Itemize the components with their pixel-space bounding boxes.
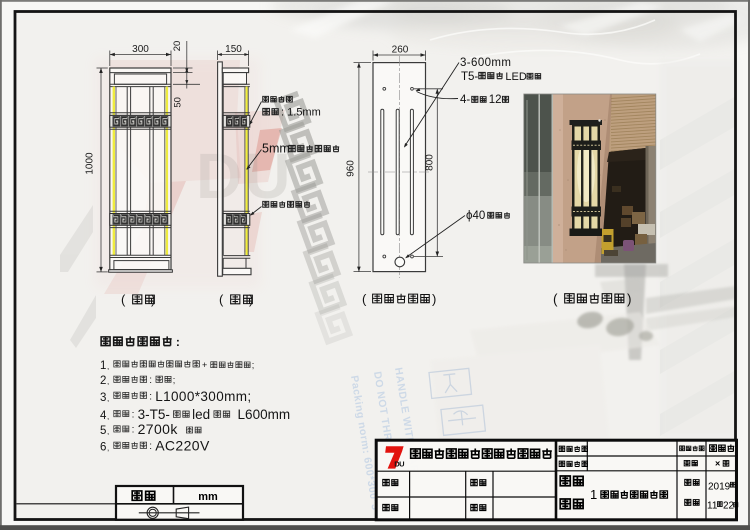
svg-text:(: ( <box>121 292 126 307</box>
svg-text:): ) <box>627 292 632 307</box>
svg-text:3-T5-: 3-T5- <box>138 407 170 422</box>
svg-text:1000: 1000 <box>85 152 96 175</box>
svg-text:12: 12 <box>489 94 502 106</box>
svg-text:ϕ40: ϕ40 <box>466 210 485 222</box>
svg-text:,: , <box>107 444 109 453</box>
svg-text:4: 4 <box>100 410 107 422</box>
svg-text:2019: 2019 <box>708 482 731 493</box>
svg-text::: : <box>132 425 135 436</box>
svg-text:(: ( <box>219 292 224 307</box>
svg-text:: 1.5mm: : 1.5mm <box>281 107 321 119</box>
svg-text::: : <box>132 410 135 421</box>
svg-text:,: , <box>107 377 109 386</box>
svg-text:led: led <box>192 407 210 422</box>
svg-text:3-600mm: 3-600mm <box>460 57 511 69</box>
svg-text:T5-: T5- <box>461 71 478 83</box>
svg-text:): ) <box>151 292 155 307</box>
svg-text:4-: 4- <box>460 94 470 106</box>
svg-text:;: ; <box>173 375 176 385</box>
svg-text::: : <box>176 335 180 349</box>
svg-text:960: 960 <box>346 160 357 177</box>
svg-text:(: ( <box>553 292 558 307</box>
svg-text:1: 1 <box>100 360 106 372</box>
svg-text::: : <box>149 441 152 452</box>
svg-text:,: , <box>107 394 109 403</box>
svg-text:5mm: 5mm <box>262 142 290 156</box>
svg-text::: : <box>149 392 152 403</box>
svg-text:5: 5 <box>100 425 106 437</box>
svg-text:mm: mm <box>198 491 218 503</box>
svg-text:,: , <box>107 427 109 436</box>
svg-text:L600mm: L600mm <box>238 407 291 422</box>
svg-text:AC220V: AC220V <box>155 438 210 454</box>
svg-text:1: 1 <box>590 487 597 502</box>
svg-text:2: 2 <box>100 375 106 387</box>
svg-text:11: 11 <box>707 501 718 512</box>
svg-text:): ) <box>432 292 436 307</box>
svg-text:;: ; <box>252 360 255 370</box>
svg-text:260: 260 <box>392 44 409 55</box>
svg-text:800: 800 <box>425 154 436 171</box>
svg-text:6: 6 <box>100 442 106 454</box>
svg-text::: : <box>149 375 152 386</box>
svg-text:22: 22 <box>723 501 735 512</box>
svg-text:×: × <box>715 459 720 469</box>
svg-text:L1000*300mm;: L1000*300mm; <box>155 389 251 404</box>
svg-text:+: + <box>202 360 207 370</box>
svg-text:): ) <box>249 292 253 307</box>
svg-text:LED: LED <box>505 71 526 83</box>
svg-text:20: 20 <box>172 41 183 52</box>
svg-text:,: , <box>107 362 109 371</box>
svg-text:DU: DU <box>394 459 404 468</box>
svg-text:2700k: 2700k <box>138 421 179 437</box>
svg-text:,: , <box>107 412 109 421</box>
svg-text:(: ( <box>362 292 367 307</box>
svg-text:300: 300 <box>132 44 149 55</box>
svg-text:3: 3 <box>100 392 106 404</box>
svg-text:50: 50 <box>172 97 183 108</box>
svg-text:150: 150 <box>225 44 242 55</box>
